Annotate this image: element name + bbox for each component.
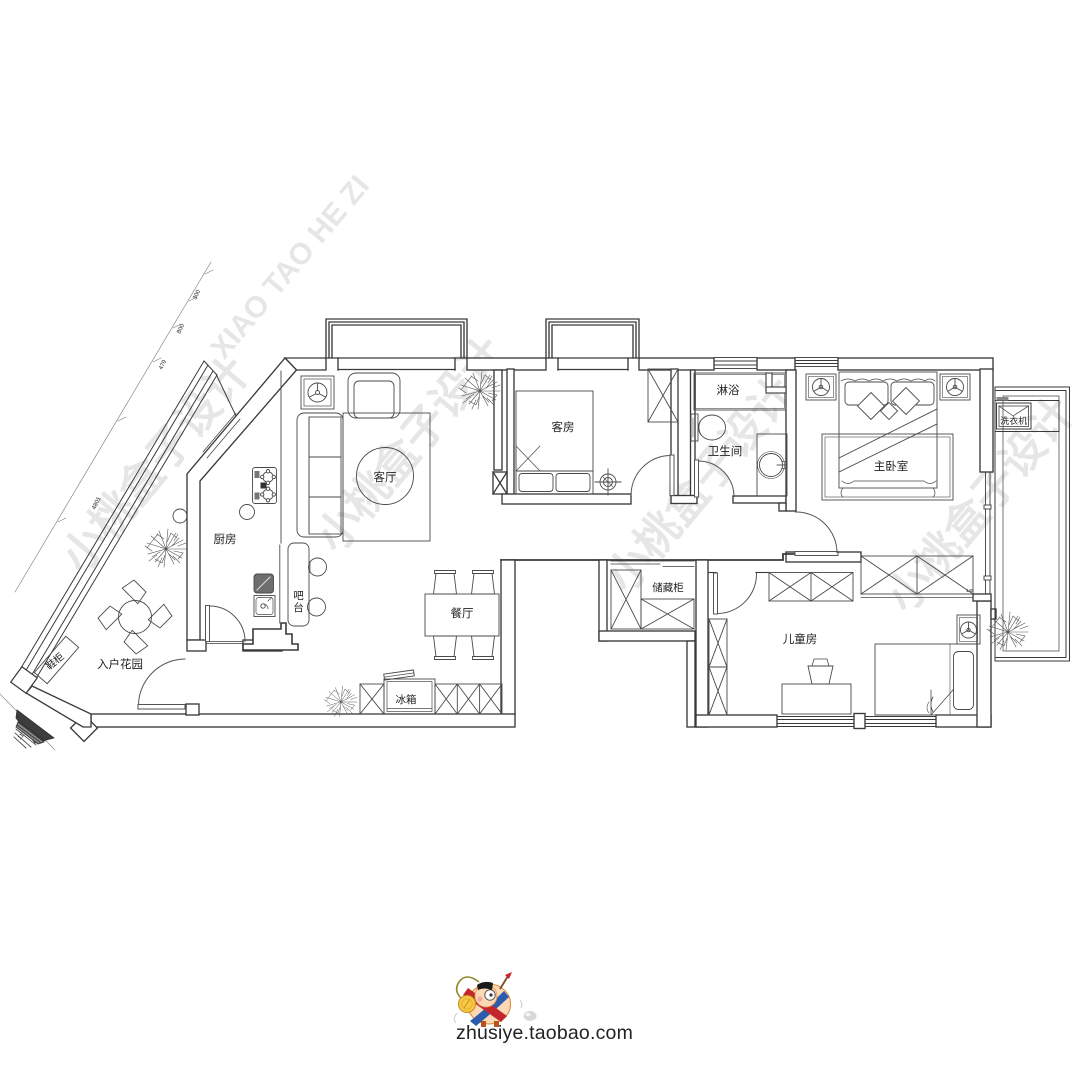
svg-text:儿童房: 儿童房 <box>783 632 818 646</box>
svg-text:洗衣机: 洗衣机 <box>1000 415 1027 426</box>
svg-text:储藏柜: 储藏柜 <box>652 581 684 594</box>
svg-text:主卧室: 主卧室 <box>874 459 909 473</box>
svg-text:zhusiye.taobao.com: zhusiye.taobao.com <box>456 1022 633 1044</box>
svg-text:客房: 客房 <box>552 420 575 434</box>
svg-text:冰箱: 冰箱 <box>396 693 417 706</box>
svg-text:吧: 吧 <box>293 590 304 602</box>
svg-text:145: 145 <box>966 588 974 593</box>
svg-text:台: 台 <box>293 601 304 614</box>
svg-text:客厅: 客厅 <box>374 470 397 484</box>
svg-text:入户花园: 入户花园 <box>97 657 143 671</box>
svg-text:厨房: 厨房 <box>214 533 237 546</box>
svg-text:淋浴: 淋浴 <box>717 384 740 397</box>
svg-text:卫生间: 卫生间 <box>708 444 743 458</box>
svg-text:餐厅: 餐厅 <box>451 606 474 620</box>
